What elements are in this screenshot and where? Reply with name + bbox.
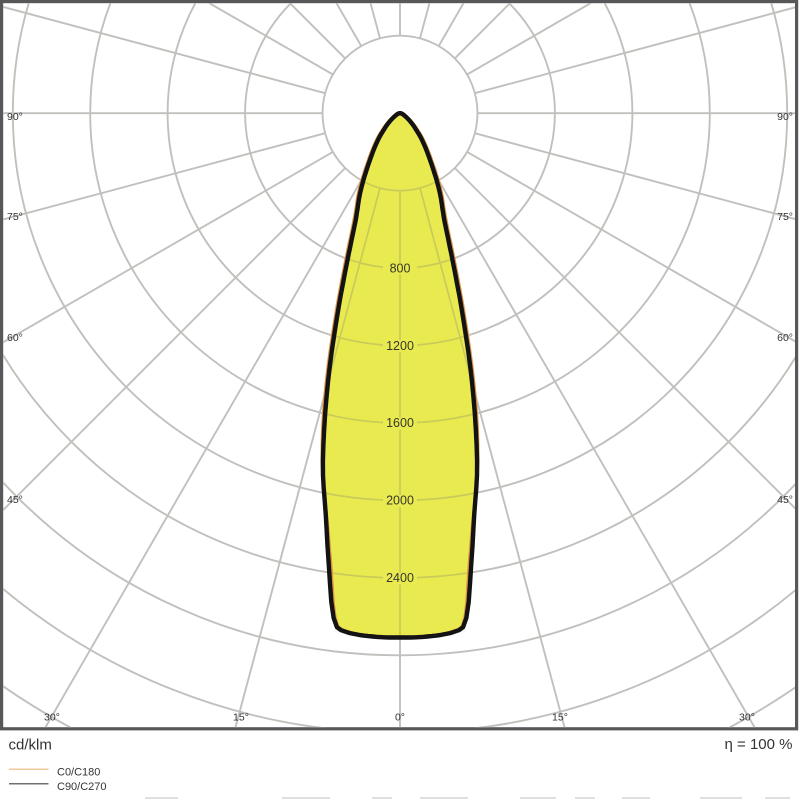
svg-text:90°: 90° <box>7 111 23 123</box>
svg-text:45°: 45° <box>777 494 793 506</box>
svg-text:η = 100 %: η = 100 % <box>725 736 793 753</box>
svg-text:0°: 0° <box>395 712 405 724</box>
svg-text:C0/C180: C0/C180 <box>57 767 100 779</box>
svg-text:2400: 2400 <box>386 571 414 585</box>
svg-text:2000: 2000 <box>386 494 414 508</box>
svg-text:15°: 15° <box>233 712 249 724</box>
svg-text:75°: 75° <box>7 211 23 223</box>
svg-text:C90/C270: C90/C270 <box>57 781 107 793</box>
svg-text:30°: 30° <box>739 712 755 724</box>
svg-text:1600: 1600 <box>386 416 414 430</box>
svg-text:1200: 1200 <box>386 339 414 353</box>
svg-text:90°: 90° <box>777 111 793 123</box>
svg-text:45°: 45° <box>7 494 23 506</box>
svg-text:75°: 75° <box>777 211 793 223</box>
svg-text:cd/klm: cd/klm <box>9 737 52 754</box>
svg-text:15°: 15° <box>552 712 568 724</box>
svg-text:60°: 60° <box>777 332 793 344</box>
svg-text:30°: 30° <box>44 712 60 724</box>
svg-text:60°: 60° <box>7 332 23 344</box>
svg-text:800: 800 <box>390 261 411 275</box>
